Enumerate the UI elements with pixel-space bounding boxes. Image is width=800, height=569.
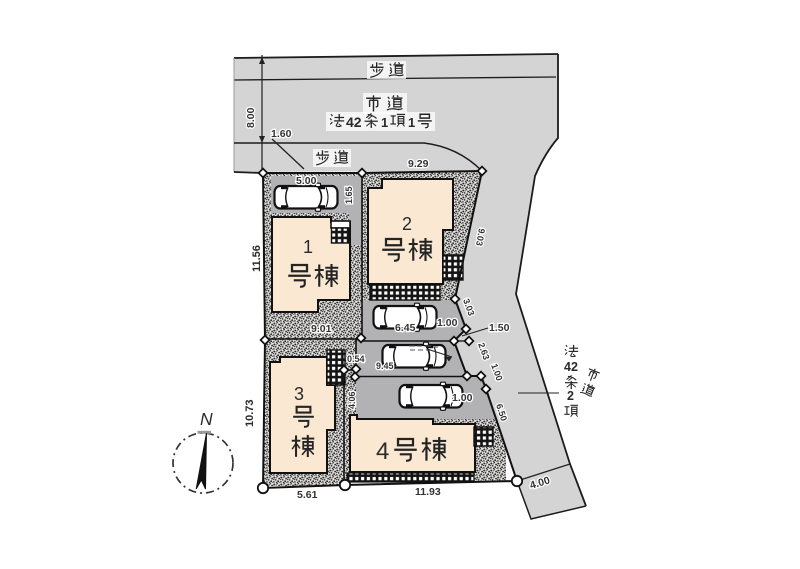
- svg-text:2: 2: [567, 389, 574, 403]
- svg-text:9.01: 9.01: [311, 323, 332, 335]
- svg-text:10.73: 10.73: [244, 399, 256, 427]
- svg-text:1: 1: [381, 115, 388, 130]
- svg-text:9.29: 9.29: [408, 158, 429, 170]
- svg-text:3: 3: [294, 384, 304, 404]
- svg-text:1.00: 1.00: [437, 317, 458, 329]
- svg-text:2: 2: [402, 214, 412, 234]
- svg-text:1.50: 1.50: [489, 322, 510, 334]
- svg-text:1.00: 1.00: [452, 392, 473, 404]
- svg-text:1.60: 1.60: [271, 128, 292, 140]
- svg-text:5.61: 5.61: [297, 489, 318, 501]
- svg-text:5.00: 5.00: [296, 175, 317, 187]
- svg-text:4.06: 4.06: [347, 391, 357, 409]
- svg-text:9.45: 9.45: [376, 361, 394, 371]
- svg-text:6.45: 6.45: [395, 322, 416, 334]
- svg-text:11.56: 11.56: [251, 245, 263, 272]
- svg-text:1: 1: [303, 237, 313, 257]
- svg-text:4: 4: [376, 438, 389, 465]
- svg-text:11.93: 11.93: [415, 486, 441, 498]
- svg-text:N: N: [200, 409, 213, 429]
- svg-text:42: 42: [564, 360, 578, 374]
- svg-text:1: 1: [408, 115, 415, 130]
- svg-text:8.00: 8.00: [245, 107, 257, 128]
- svg-text:0.54: 0.54: [347, 354, 365, 364]
- svg-text:1.65: 1.65: [344, 186, 354, 204]
- svg-text:42: 42: [346, 114, 362, 130]
